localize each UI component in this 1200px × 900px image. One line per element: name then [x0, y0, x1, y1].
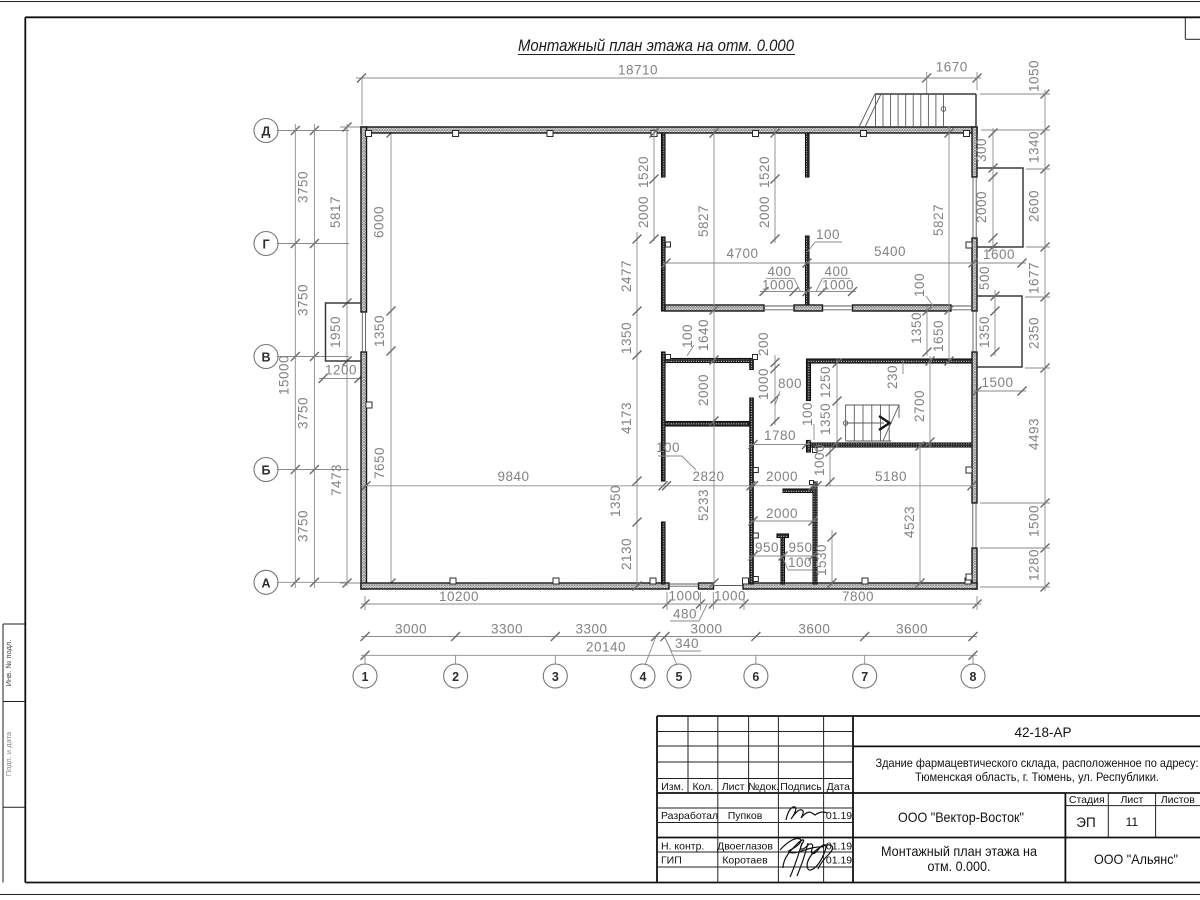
- svg-text:100: 100: [656, 440, 680, 455]
- svg-text:3300: 3300: [575, 622, 607, 637]
- svg-text:42-18-АР: 42-18-АР: [1014, 725, 1071, 740]
- svg-text:2000: 2000: [636, 196, 651, 228]
- svg-text:01.19: 01.19: [826, 810, 852, 822]
- svg-text:1350: 1350: [372, 315, 387, 347]
- svg-text:1350: 1350: [619, 322, 634, 354]
- svg-text:ЭП: ЭП: [1076, 815, 1095, 830]
- svg-text:Лист: Лист: [1120, 794, 1143, 806]
- svg-text:1350: 1350: [608, 485, 623, 517]
- svg-text:3750: 3750: [296, 284, 311, 316]
- svg-text:7473: 7473: [329, 464, 344, 496]
- svg-text:10200: 10200: [439, 589, 479, 604]
- svg-text:Пупков: Пупков: [728, 810, 763, 822]
- svg-text:5233: 5233: [696, 489, 711, 521]
- svg-text:1350: 1350: [977, 316, 992, 348]
- svg-text:Г: Г: [262, 238, 269, 252]
- svg-text:Коротаев: Коротаев: [722, 855, 768, 867]
- svg-text:800: 800: [778, 376, 802, 391]
- svg-text:480: 480: [673, 607, 697, 622]
- svg-text:Лист: Лист: [722, 781, 745, 793]
- svg-text:100: 100: [788, 555, 812, 570]
- svg-text:1000: 1000: [756, 368, 771, 400]
- svg-text:5827: 5827: [931, 204, 946, 236]
- svg-text:01.19: 01.19: [826, 841, 852, 853]
- svg-text:7650: 7650: [372, 447, 387, 479]
- svg-text:Н. контр.: Н. контр.: [661, 841, 704, 853]
- svg-text:1280: 1280: [1027, 549, 1042, 581]
- svg-text:100: 100: [800, 402, 815, 426]
- svg-text:1000: 1000: [812, 444, 827, 476]
- svg-text:3600: 3600: [896, 622, 928, 637]
- svg-text:300: 300: [974, 138, 989, 162]
- svg-text:20140: 20140: [586, 640, 626, 655]
- svg-text:2130: 2130: [619, 538, 634, 570]
- svg-text:Разработал: Разработал: [661, 810, 718, 822]
- svg-text:15000: 15000: [277, 355, 292, 395]
- svg-text:950: 950: [755, 540, 779, 555]
- svg-text:1670: 1670: [936, 60, 968, 75]
- svg-text:1640: 1640: [696, 319, 711, 351]
- svg-text:3750: 3750: [296, 510, 311, 542]
- svg-text:5827: 5827: [696, 205, 711, 237]
- svg-text:ГИП: ГИП: [661, 855, 682, 867]
- svg-text:2000: 2000: [766, 506, 798, 521]
- svg-text:ООО "Вектор-Восток": ООО "Вектор-Восток": [898, 809, 1024, 825]
- svg-text:1000: 1000: [762, 278, 794, 293]
- svg-text:А: А: [261, 576, 270, 590]
- svg-text:100: 100: [912, 273, 927, 297]
- svg-text:1677: 1677: [1027, 262, 1042, 294]
- svg-text:2000: 2000: [757, 196, 772, 228]
- svg-text:4: 4: [640, 670, 647, 684]
- svg-text:5400: 5400: [874, 244, 906, 259]
- svg-text:3000: 3000: [690, 622, 722, 637]
- svg-text:1520: 1520: [757, 156, 772, 188]
- svg-text:2: 2: [452, 670, 459, 684]
- svg-text:1600: 1600: [983, 247, 1015, 262]
- svg-text:5180: 5180: [875, 469, 907, 484]
- svg-text:11: 11: [1126, 815, 1139, 829]
- svg-text:Тюменская область, г. Тюмень,: Тюменская область, г. Тюмень, ул. Респуб…: [915, 770, 1159, 784]
- svg-text:1340: 1340: [1027, 131, 1042, 163]
- svg-text:4700: 4700: [726, 246, 758, 261]
- svg-text:5: 5: [676, 670, 683, 684]
- svg-text:3: 3: [552, 670, 559, 684]
- svg-text:1200: 1200: [325, 363, 357, 378]
- svg-text:отм. 0.000.: отм. 0.000.: [928, 858, 991, 874]
- svg-text:Листов: Листов: [1161, 794, 1196, 806]
- svg-text:1500: 1500: [1027, 505, 1042, 537]
- svg-text:8: 8: [970, 670, 977, 684]
- svg-text:2000: 2000: [696, 374, 711, 406]
- svg-text:В: В: [261, 351, 270, 365]
- svg-text:950: 950: [788, 540, 812, 555]
- svg-text:340: 340: [675, 636, 699, 651]
- svg-text:Стадия: Стадия: [1069, 794, 1105, 806]
- svg-text:7800: 7800: [842, 589, 874, 604]
- svg-text:5817: 5817: [328, 196, 343, 228]
- svg-text:ООО "Альянс": ООО "Альянс": [1094, 851, 1178, 867]
- svg-text:2000: 2000: [766, 469, 798, 484]
- svg-text:№док.: №док.: [748, 781, 779, 793]
- svg-text:7: 7: [861, 670, 868, 684]
- svg-text:Кол.: Кол.: [693, 781, 714, 793]
- svg-text:1520: 1520: [636, 156, 651, 188]
- svg-text:Монтажный план этажа на отм. 0: Монтажный план этажа на отм. 0.000: [518, 36, 794, 55]
- svg-text:500: 500: [977, 266, 992, 290]
- svg-text:2477: 2477: [619, 260, 634, 292]
- svg-text:Подпись: Подпись: [780, 781, 822, 793]
- svg-text:100: 100: [816, 227, 840, 242]
- svg-text:1: 1: [362, 670, 369, 684]
- svg-text:2700: 2700: [912, 390, 927, 422]
- svg-text:1500: 1500: [981, 375, 1013, 390]
- svg-text:3750: 3750: [296, 171, 311, 203]
- svg-text:9840: 9840: [497, 469, 529, 484]
- svg-text:Б: Б: [262, 464, 271, 478]
- svg-text:3000: 3000: [395, 622, 427, 637]
- svg-text:1780: 1780: [764, 428, 796, 443]
- svg-text:Инв. № подл.: Инв. № подл.: [4, 640, 13, 687]
- svg-text:2000: 2000: [974, 191, 989, 223]
- svg-text:230: 230: [885, 365, 900, 389]
- svg-text:2820: 2820: [692, 469, 724, 484]
- svg-text:100: 100: [680, 324, 695, 348]
- svg-text:1000: 1000: [822, 278, 854, 293]
- svg-text:Монтажный план этажа на: Монтажный план этажа на: [881, 843, 1037, 859]
- svg-text:Здание фармацевтического склад: Здание фармацевтического склада, располо…: [876, 756, 1199, 770]
- svg-text:1530: 1530: [814, 544, 829, 576]
- svg-text:1250: 1250: [818, 366, 833, 398]
- svg-text:Изм.: Изм.: [661, 781, 684, 793]
- svg-text:Подп. и дата: Подп. и дата: [4, 731, 13, 776]
- svg-text:1650: 1650: [931, 320, 946, 352]
- svg-text:6000: 6000: [372, 206, 387, 238]
- svg-text:2350: 2350: [1027, 317, 1042, 349]
- svg-text:3750: 3750: [296, 397, 311, 429]
- svg-text:6: 6: [752, 670, 759, 684]
- svg-text:18710: 18710: [618, 63, 658, 78]
- svg-text:Д: Д: [262, 125, 271, 139]
- svg-text:01.19: 01.19: [826, 855, 852, 867]
- svg-text:200: 200: [756, 332, 771, 356]
- svg-text:2600: 2600: [1027, 190, 1042, 222]
- svg-text:1000: 1000: [668, 589, 700, 604]
- svg-text:1950: 1950: [328, 316, 343, 348]
- svg-text:3600: 3600: [798, 622, 830, 637]
- svg-text:Двоеглазов: Двоеглазов: [717, 841, 773, 853]
- svg-text:1000: 1000: [714, 589, 746, 604]
- svg-text:4523: 4523: [902, 506, 917, 538]
- svg-text:4493: 4493: [1027, 418, 1042, 450]
- svg-text:Дата: Дата: [827, 781, 850, 793]
- svg-text:1050: 1050: [1027, 60, 1042, 92]
- svg-text:1350: 1350: [818, 403, 833, 435]
- svg-text:4173: 4173: [619, 402, 634, 434]
- svg-text:3300: 3300: [491, 622, 523, 637]
- svg-text:1350: 1350: [909, 312, 924, 344]
